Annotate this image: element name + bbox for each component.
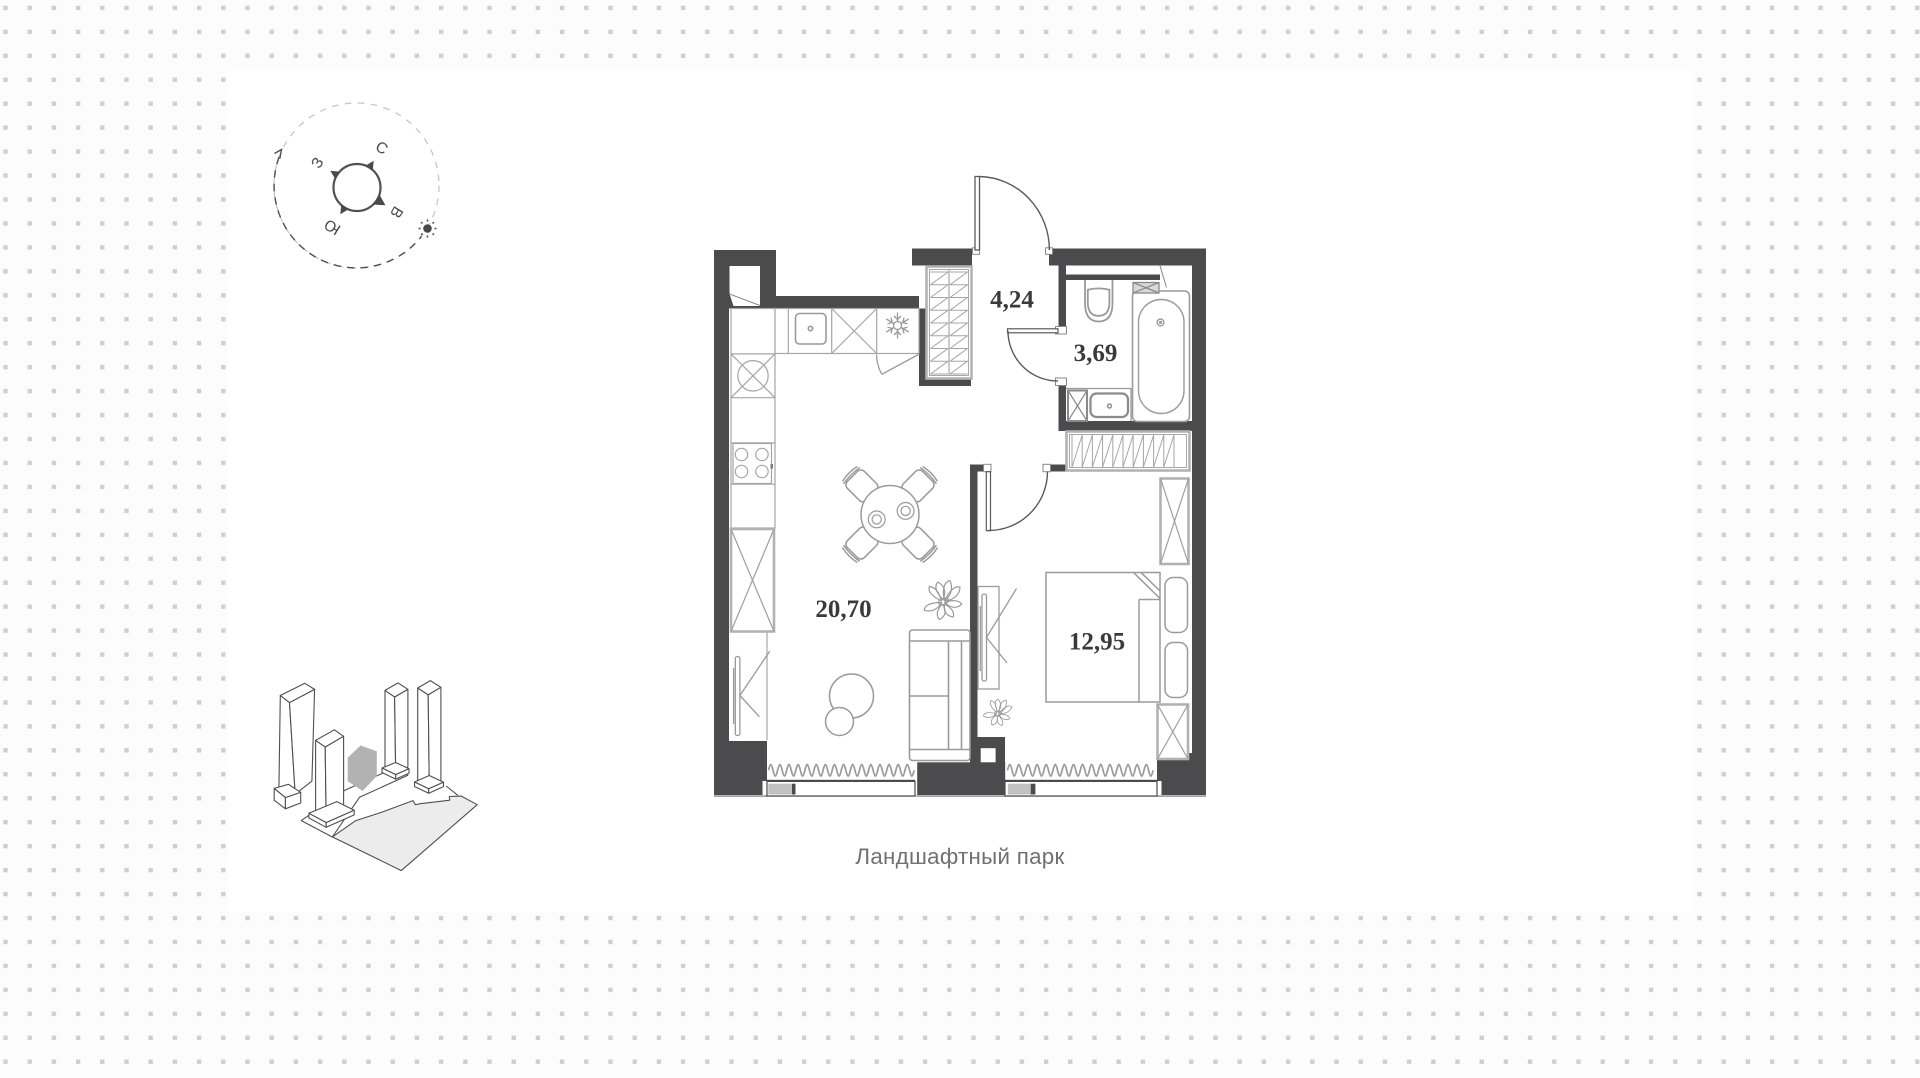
svg-text:12,95: 12,95	[1069, 629, 1125, 656]
svg-text:Ландшафтный парк: Ландшафтный парк	[855, 844, 1064, 869]
svg-text:3,69: 3,69	[1074, 340, 1118, 367]
svg-text:20,70: 20,70	[815, 596, 871, 623]
svg-text:4,24: 4,24	[990, 287, 1034, 314]
